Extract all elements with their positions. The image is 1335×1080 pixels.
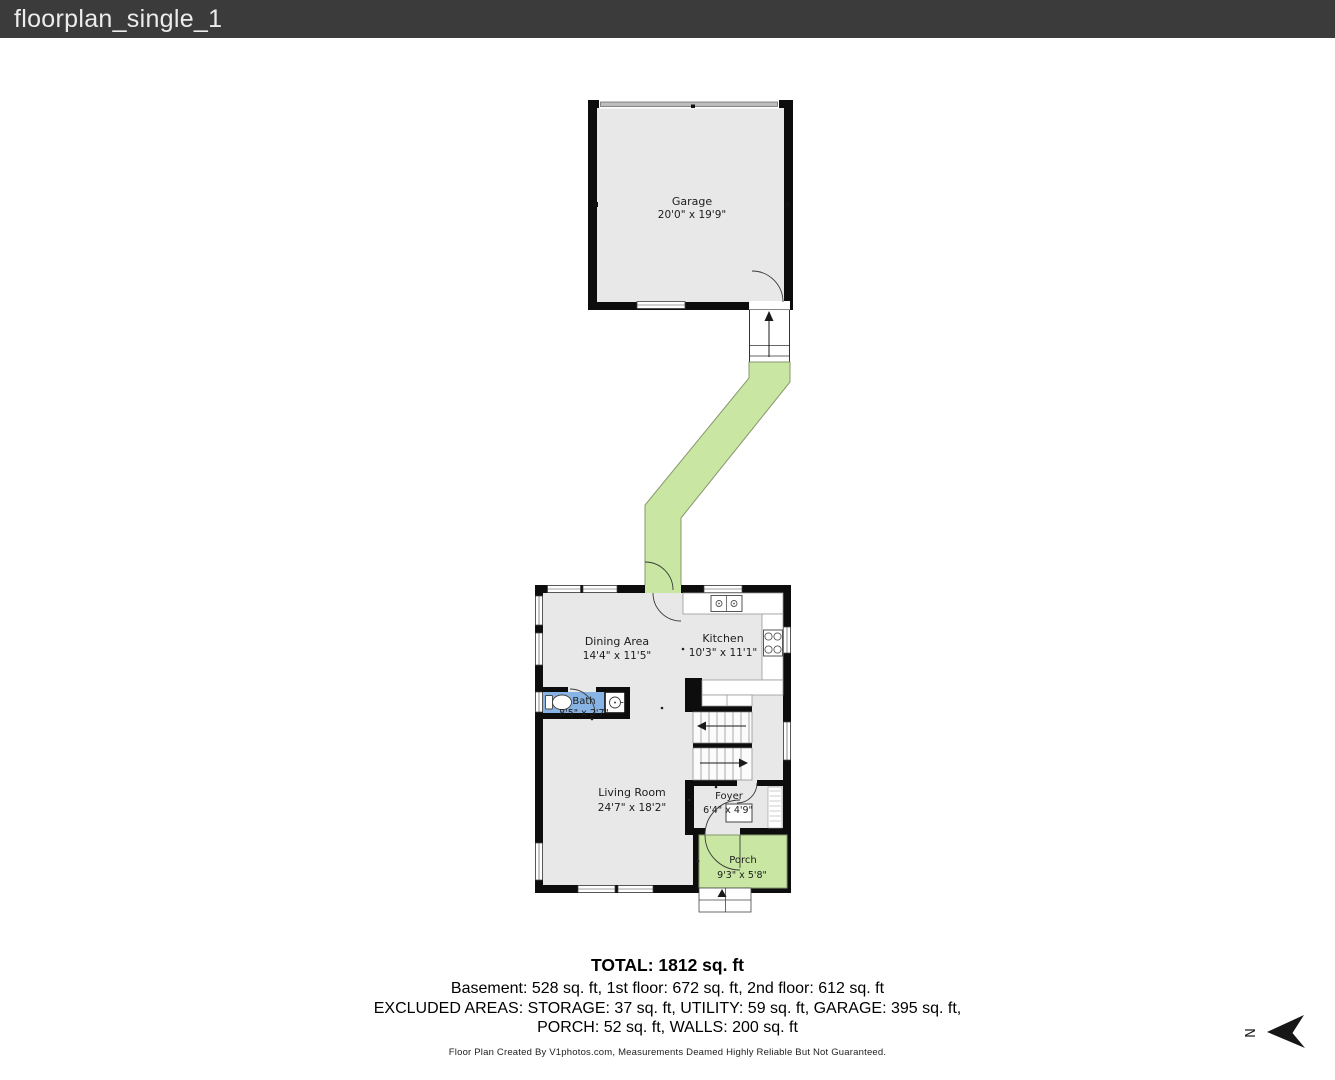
room-dims-foyer: 6'4" x 4'9": [703, 805, 753, 816]
garage-steps: [750, 310, 790, 363]
garage-exit-opening: [749, 301, 790, 310]
room-label-living: Living Room: [598, 786, 666, 799]
window: [637, 302, 685, 309]
room-dims-dining: 14'4" x 11'5": [583, 650, 651, 662]
area-summary: TOTAL: 1812 sq. ft Basement: 528 sq. ft,…: [0, 955, 1335, 1038]
floor-plan-svg: Garage 20'0" x 19'9": [0, 0, 1335, 1080]
window: [784, 722, 791, 760]
window: [704, 586, 742, 593]
excluded-areas-line2: PORCH: 52 sq. ft, WALLS: 200 sq. ft: [0, 1018, 1335, 1038]
room-label-bath: Bath: [572, 696, 595, 707]
porch-area: Porch 9'3" x 5'8": [699, 835, 787, 888]
wall-tick: [785, 202, 790, 207]
house: Kitchen 10'3" x 11'1" Dining Area 14'4" …: [535, 562, 791, 912]
window: [536, 843, 543, 880]
room-label-garage: Garage: [672, 195, 713, 208]
window: [784, 627, 791, 653]
entry-opening: [645, 585, 681, 593]
garage-room: Garage 20'0" x 19'9": [588, 100, 793, 310]
window: [536, 692, 543, 712]
room-label-kitchen: Kitchen: [702, 632, 743, 645]
garage-door-marker: [691, 105, 695, 109]
walkway: [645, 362, 790, 593]
window: [536, 596, 543, 625]
kitchen-stove: [764, 630, 783, 656]
room-dims-porch: 9'3" x 5'8": [717, 870, 767, 881]
total-area: TOTAL: 1812 sq. ft: [0, 955, 1335, 976]
window: [548, 586, 581, 593]
room-label-foyer: Foyer: [715, 791, 744, 802]
room-dims-living: 24'7" x 18'2": [598, 802, 666, 814]
porch-steps: [699, 888, 751, 912]
window: [536, 633, 543, 665]
kitchen-sink: [711, 596, 742, 612]
kitchen-counter-bottom: [702, 680, 783, 695]
wall-tick: [593, 202, 598, 207]
window: [583, 586, 617, 593]
credit-line: Floor Plan Created By V1photos.com, Meas…: [0, 1047, 1335, 1058]
room-dims-kitchen: 10'3" x 11'1": [689, 647, 757, 659]
window: [578, 886, 615, 893]
railing-strip: [768, 787, 782, 828]
room-dims-bath: 8'5" x 2'7": [559, 708, 609, 719]
excluded-areas-line1: EXCLUDED AREAS: STORAGE: 37 sq. ft, UTIL…: [0, 999, 1335, 1019]
room-label-dining: Dining Area: [585, 635, 649, 648]
window: [618, 886, 653, 893]
floor-areas: Basement: 528 sq. ft, 1st floor: 672 sq.…: [0, 979, 1335, 999]
arrow-head: [765, 311, 774, 321]
garage-door: [601, 102, 778, 107]
room-label-porch: Porch: [729, 855, 757, 866]
kitchen-cabinet: [702, 695, 752, 706]
room-dims-garage: 20'0" x 19'9": [658, 209, 726, 221]
